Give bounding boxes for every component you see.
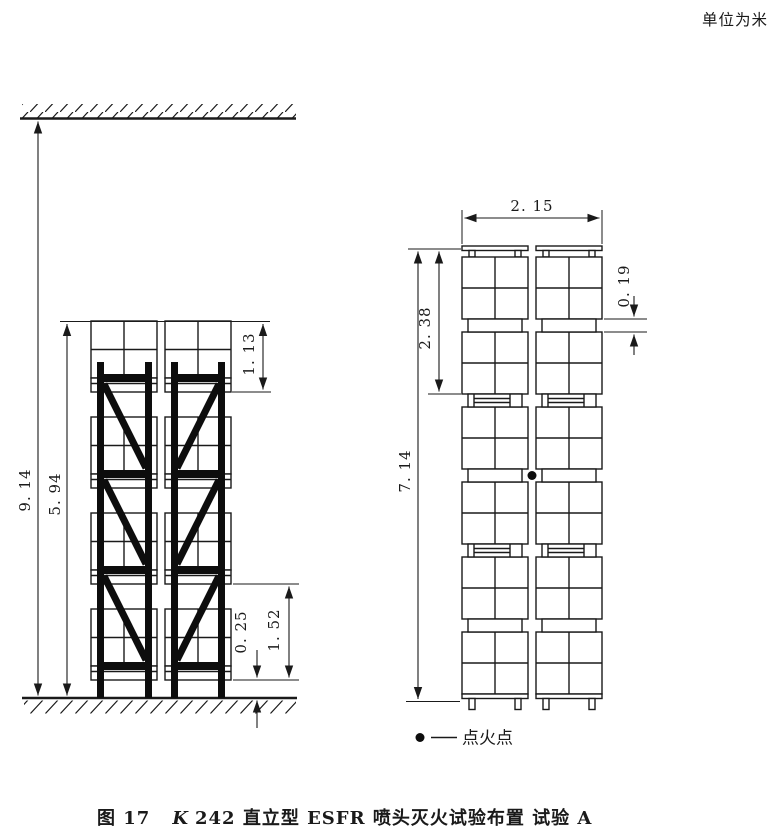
pallet [542,394,596,407]
caption-k-factor: K [172,808,189,829]
box-tier [536,482,602,544]
dim-ceiling-height: 9. 14 [16,122,38,696]
rack-elevation-view: 9. 14 5. 94 1. 13 1. 52 0. 25 [16,104,299,728]
figure-page: 单位为米 [0,0,780,833]
box-tier [536,257,602,319]
spacer [468,469,522,482]
rack-beam [171,662,225,670]
pallet [468,544,522,557]
dim-label: 2. 15 [510,197,553,215]
rack-post [97,362,104,698]
floor [22,698,297,714]
spacer [542,619,596,632]
figure-canvas: 9. 14 5. 94 1. 13 1. 52 0. 25 [0,0,780,775]
bottom-pallets [462,694,602,710]
rack-beam [97,662,152,670]
rack-post [145,362,152,698]
ceiling [20,104,296,119]
box-tier [462,557,528,619]
ignition-point-marker [528,471,537,480]
box-tier [462,257,528,319]
rack-post [171,362,178,698]
rack-beam [171,374,225,382]
dim-module-height: 2. 38 [416,252,461,395]
pallet [462,694,528,710]
caption-title: 242 直立型 ESFR 喷头灭火试验布置 试验 A [195,808,592,829]
pallet [468,394,522,407]
legend-label: 点火点 [462,729,513,749]
pallet [536,694,602,710]
box-tier [462,632,528,694]
dim-label: 2. 38 [416,306,434,349]
dim-label: 1. 52 [265,608,283,651]
spacer [542,319,596,332]
dim-label: 0. 19 [615,264,633,307]
pallet [462,246,528,257]
dim-label: 9. 14 [16,468,34,511]
rack-beam [97,470,152,478]
rack-beam [97,374,152,382]
spacer [468,619,522,632]
dim-pallet-height: 0. 19 [604,264,647,355]
box-tier [462,482,528,544]
spacer [542,469,596,482]
legend: 点火点 [416,729,514,749]
ignition-dot-icon [416,733,425,742]
top-pallets [462,246,602,257]
dim-stack-width: 2. 15 [462,197,602,244]
pallet-stack-view: 2. 15 7. 14 2. 38 0. 19 [396,197,647,710]
dim-label: 0. 25 [232,610,250,653]
figure-caption: 图 17K242 直立型 ESFR 喷头灭火试验布置 试验 A [97,804,592,830]
box-tier [462,407,528,469]
dim-top-tier-height: 1. 13 [232,324,271,392]
box-tier [536,632,602,694]
box-tier [536,332,602,394]
rack-beam [171,566,225,574]
dim-label: 7. 14 [396,449,414,492]
rack-post [218,362,225,698]
box-tier [536,407,602,469]
rack-beam [97,566,152,574]
dim-label: 5. 94 [46,472,64,515]
pallet [536,246,602,257]
rack-beam [171,470,225,478]
figure-number: 图 17 [97,808,150,829]
spacer [468,319,522,332]
box-tier [462,332,528,394]
dim-label: 1. 13 [240,332,258,375]
box-tier [536,557,602,619]
pallet [542,544,596,557]
